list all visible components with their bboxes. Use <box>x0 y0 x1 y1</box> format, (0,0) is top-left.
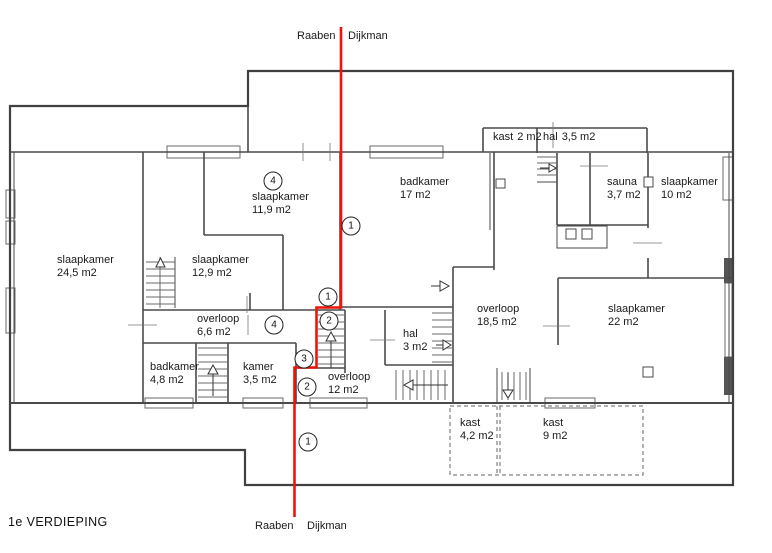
section-marker-2b: 2 <box>298 378 317 397</box>
drawing-title: 1e VERDIEPING <box>8 515 108 529</box>
room-label-overloop-12: overloop12 m2 <box>328 371 370 397</box>
section-marker-1c: 1 <box>299 433 318 452</box>
room-label-slaapkamer-12-9: slaapkamer12,9 m2 <box>192 254 249 280</box>
section-marker-1b: 1 <box>319 288 338 307</box>
room-label-slaapkamer-11-9: slaapkamer11,9 m2 <box>252 191 309 217</box>
boundary-label-bottom-right: Dijkman <box>307 520 347 532</box>
stair-direction-arrows <box>156 164 556 398</box>
section-marker-3a: 3 <box>295 350 314 369</box>
room-label-slaapkamer-10: slaapkamer10 m2 <box>661 176 718 202</box>
section-marker-1a: 1 <box>342 217 361 236</box>
room-label-sauna-3-7: sauna3,7 m2 <box>607 176 641 202</box>
room-label-badkamer-17: badkamer17 m2 <box>400 176 449 202</box>
room-label-hal-3-5: hal3,5 m2 <box>543 131 595 144</box>
room-label-badkamer-4-8: badkamer4,8 m2 <box>150 361 199 387</box>
room-label-kast-9: kast9 m2 <box>543 417 567 443</box>
room-label-hal-3: hal3 m2 <box>403 328 427 354</box>
room-label-kamer-3-5: kamer3,5 m2 <box>243 361 277 387</box>
floor-plan-drawing <box>0 0 772 553</box>
room-label-overloop-6-6: overloop6,6 m2 <box>197 313 239 339</box>
section-marker-4b: 4 <box>265 316 284 335</box>
floor-plan-canvas: Raaben Dijkman Raaben Dijkman slaapkamer… <box>0 0 772 553</box>
boundary-label-bottom-left: Raaben <box>255 520 294 532</box>
room-label-kast-2: kast2 m2 <box>493 131 542 144</box>
section-marker-2a: 2 <box>320 312 339 331</box>
room-label-slaapkamer-24-5: slaapkamer24,5 m2 <box>57 254 114 280</box>
fixture-squares <box>496 177 653 377</box>
section-marker-4a: 4 <box>264 172 283 191</box>
room-label-kast-4-2: kast4,2 m2 <box>460 417 494 443</box>
boundary-label-top-left: Raaben <box>297 30 336 42</box>
interior-walls <box>10 106 733 403</box>
room-label-overloop-18-5: overloop18,5 m2 <box>477 303 519 329</box>
room-label-slaapkamer-22: slaapkamer22 m2 <box>608 303 665 329</box>
boundary-label-top-right: Dijkman <box>348 30 388 42</box>
